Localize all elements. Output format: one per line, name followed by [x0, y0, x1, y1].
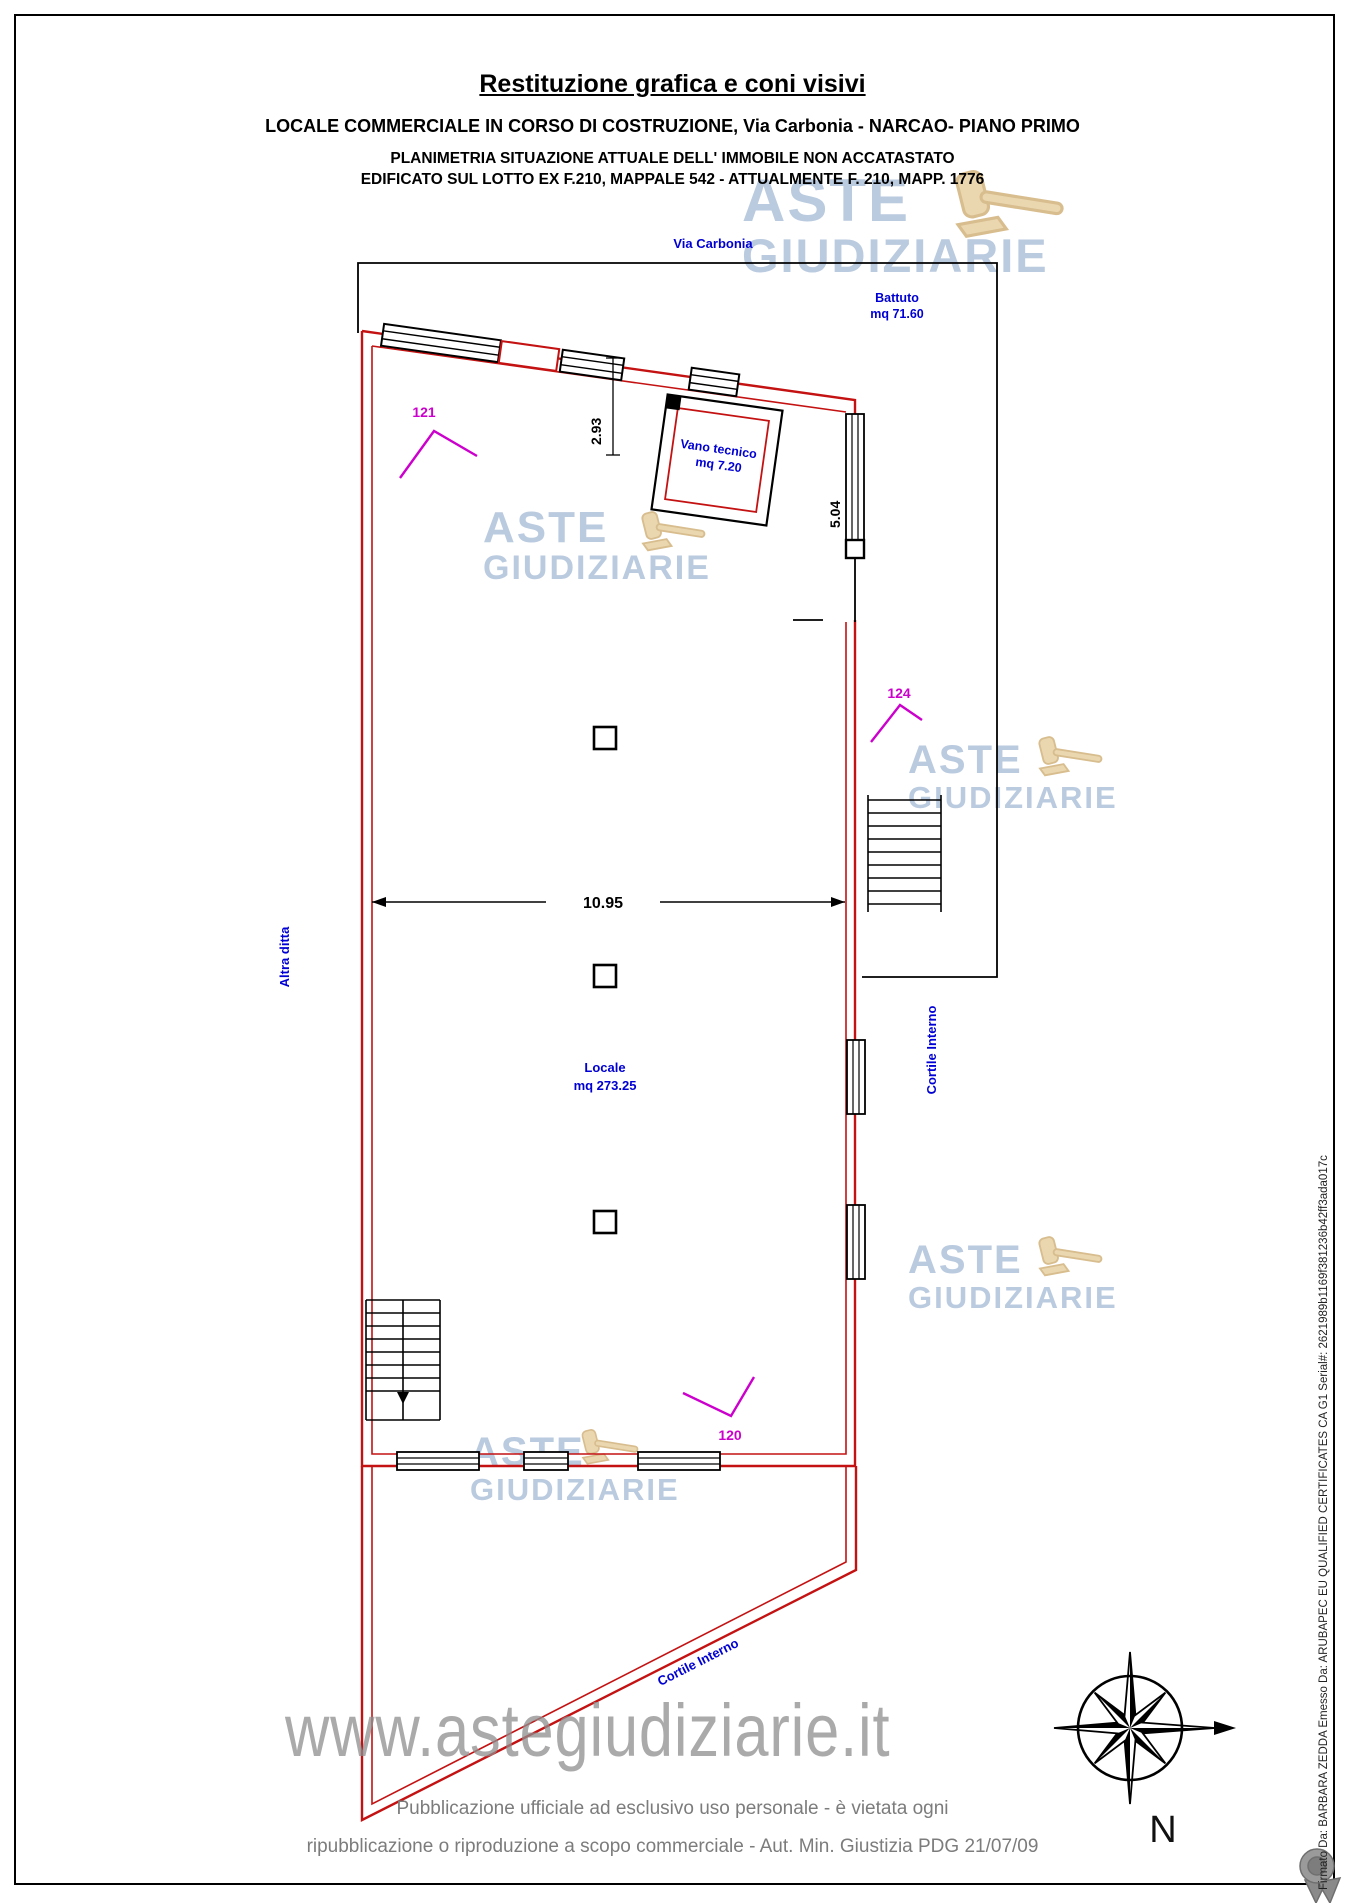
- camera-marker-121-label: 121: [412, 404, 436, 420]
- locale-area-label: mq 273.25: [574, 1078, 637, 1093]
- dimension-top-value: 2.93: [588, 418, 604, 445]
- window-right-2: [847, 1205, 865, 1279]
- gavel-icon: [582, 1429, 638, 1464]
- gavel-icon: [1038, 736, 1102, 775]
- left-neighbour-label: Altra ditta: [277, 926, 292, 987]
- dimension-width-value: 10.95: [583, 895, 623, 912]
- window-top-2: [560, 350, 624, 380]
- camera-marker-124-label: 124: [887, 685, 911, 701]
- site-watermark: www.astegiudiziarie.it: [285, 1688, 890, 1773]
- window-right-1: [847, 1040, 865, 1114]
- gavel-icon: [1038, 1236, 1102, 1275]
- bottom-court-label: Cortile Interno: [655, 1635, 741, 1689]
- battuto-area-label: mq 71.60: [870, 307, 924, 321]
- page-title: Restituzione grafica e coni visivi: [0, 70, 1345, 99]
- right-court-label: Cortile Interno: [924, 1006, 939, 1095]
- footer-line-1: Pubblicazione ufficiale ad esclusivo uso…: [0, 1798, 1345, 1820]
- camera-marker-124: [871, 705, 922, 742]
- battuto-name-label: Battuto: [875, 291, 919, 305]
- page-subtitle: LOCALE COMMERCIALE IN CORSO DI COSTRUZIO…: [0, 116, 1345, 137]
- page-subtitle-3: EDIFICATO SUL LOTTO EX F.210, MAPPALE 54…: [0, 171, 1345, 189]
- interior-columns: [594, 727, 616, 1233]
- stairs-right: [868, 795, 941, 912]
- street-label: Via Carbonia: [673, 236, 753, 251]
- lot-boundary: [358, 263, 997, 977]
- door-top: [499, 341, 559, 371]
- column-right: [846, 540, 864, 558]
- document-page: ASTE GIUDIZIARIE ASTE GIUDIZIARIE ASTE G…: [0, 0, 1345, 1903]
- window-right-top: [846, 414, 864, 540]
- locale-name-label: Locale: [584, 1060, 625, 1075]
- page-subtitle-2: PLANIMETRIA SITUAZIONE ATTUALE DELL' IMM…: [0, 150, 1345, 168]
- gavel-icon: [641, 511, 705, 550]
- camera-marker-120-label: 120: [718, 1427, 742, 1443]
- window-top-3: [689, 368, 740, 396]
- camera-marker-120: [683, 1377, 754, 1416]
- stairs-left: [366, 1300, 440, 1420]
- dimension-right-value: 5.04: [827, 501, 843, 528]
- camera-marker-121: [400, 431, 477, 478]
- window-bottom-1: [397, 1452, 479, 1470]
- footer-line-2: ripubblicazione o riproduzione a scopo c…: [0, 1836, 1345, 1858]
- window-bottom-2: [524, 1452, 568, 1470]
- floor-plan-drawing: 10.95 2.93 5.04 121 124 120 Via Carbonia…: [0, 0, 1345, 1903]
- window-bottom-3: [638, 1452, 720, 1470]
- dimension-width: 10.95: [372, 895, 845, 912]
- digital-signature-text: Firmato Da: BARBARA ZEDDA Emesso Da: ARU…: [1318, 1155, 1330, 1890]
- compass-rose-icon: N: [1054, 1652, 1236, 1851]
